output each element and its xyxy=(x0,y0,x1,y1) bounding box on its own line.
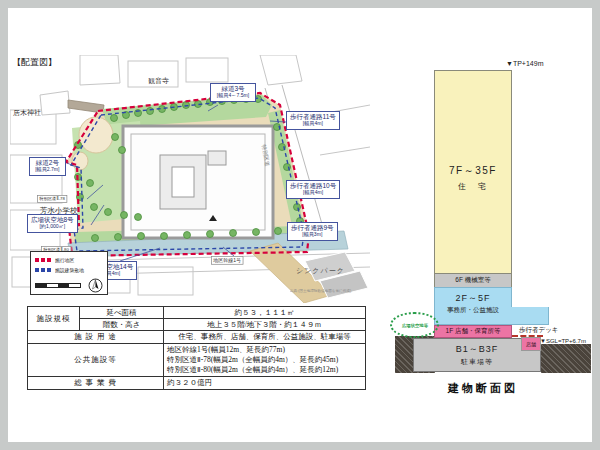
tower-use-label: 住 宅 xyxy=(434,181,512,192)
floor-area-value: 約５３，１１１㎡ xyxy=(164,307,366,319)
machine-floor-label: 6F 機械室等 xyxy=(434,276,512,285)
greenway2-label: 緑道2号 [幅員2.7m] xyxy=(29,157,66,176)
plaza-open-space-badge: 広場状空地等 xyxy=(390,312,439,338)
legend-site-label: 施設建築敷地 xyxy=(55,266,84,273)
tp-top-label: ▼TP+149m xyxy=(506,60,543,67)
table-row: 公共施設等 地区幹線1号(幅員12m、延長約77m) 特別区道Ⅱ-78(幅員2m… xyxy=(28,344,366,377)
public-line-3: 特別区道Ⅱ-80(幅員2m（全幅員約4m）、延長約12m) xyxy=(167,365,362,375)
public-facilities-label: 公共施設等 xyxy=(28,344,164,377)
office-use-label: 事務所・公益施設 xyxy=(434,306,512,315)
planning-document: { "plan": { "title": "【配置図】" }, "map": {… xyxy=(0,0,600,450)
use-label: 施 設 用 途 xyxy=(28,331,164,344)
use-value: 住宅、事務所、店舗、保育所、公益施設、駐車場等 xyxy=(164,331,366,344)
public-line-2: 特別区道Ⅱ-78(幅員2m（全幅員約4m）、延長約45m) xyxy=(167,355,362,365)
floors-value: 地上３５階/地下３階・約１４９ｍ xyxy=(164,319,366,331)
north-compass-icon xyxy=(88,278,103,293)
facility-spec-table: 施設規模 延べ面積 約５３，１１１㎡ 階数・高さ 地上３５階/地下３階・約１４９… xyxy=(27,306,366,390)
table-row: 施設規模 延べ面積 約５３，１１１㎡ xyxy=(28,307,366,319)
site-boundary-swatch xyxy=(35,268,52,272)
greenway3-label: 緑道3号 [幅員4～7.5m] xyxy=(210,83,256,102)
retail-floor-label: 1F 店舗・保育所等 xyxy=(434,327,512,336)
irugi-shrine-label: 居木神社 xyxy=(13,108,41,118)
map-legend: 施行地区 施設建築敷地 xyxy=(30,251,108,295)
basement-floors-label: B1～B3F xyxy=(413,343,541,356)
tower-floors-label: 7F～35F xyxy=(434,164,512,178)
kannonji-label: 観音寺 xyxy=(148,76,169,86)
legend-scale-row xyxy=(35,278,103,293)
scale-bar xyxy=(35,283,81,288)
lawn-oval-small xyxy=(72,152,88,170)
basement-use-label: 駐車場等 xyxy=(413,357,541,367)
legend-row-district: 施行地区 xyxy=(35,255,103,265)
floor-area-label: 延べ面積 xyxy=(80,307,164,319)
building-footprint xyxy=(123,126,273,238)
walkway11-label: 歩行者通路11号 [幅員4m] xyxy=(286,111,340,130)
public-facilities-value: 地区幹線1号(幅員12m、延長約77m) 特別区道Ⅱ-78(幅員2m（全幅員約4… xyxy=(164,344,366,377)
deck-label: 歩行者デッキ xyxy=(519,326,558,335)
floors-label: 階数・高さ xyxy=(80,319,164,331)
ward-road78-label: 特別区道Ⅱ-78 xyxy=(37,195,67,203)
district-trunk1-label: 地区幹線1号 xyxy=(211,256,243,265)
plaza-open-space-label: 広場状空地等 xyxy=(402,322,428,328)
district-boundary-swatch xyxy=(35,258,52,262)
think-park-label: シンクパーク xyxy=(296,266,345,276)
table-row: 施 設 用 途 住宅、事務所、店舗、保育所、公益施設、駐車場等 xyxy=(28,331,366,344)
cost-label: 総 事 業 費 xyxy=(28,377,164,390)
plan-title: 【配置図】 xyxy=(12,56,57,69)
legend-district-label: 施行地区 xyxy=(55,256,74,263)
sgl-label: ▼SGL=TP+6.7m xyxy=(540,338,586,344)
section-caption: 建物断面図 xyxy=(448,381,518,396)
legend-row-site: 施設建築敷地 xyxy=(35,265,103,275)
plaza8-label: 広場状空地8号 [約1,000㎡] xyxy=(27,214,78,233)
public-line-1: 地区幹線1号(幅員12m、延長約77m) xyxy=(167,345,362,355)
office-floors-label: 2F～5F xyxy=(434,292,512,305)
walkway9-label: 歩行者通路9号 [幅員3m] xyxy=(287,222,338,241)
table-row: 総 事 業 費 約３２０億円 xyxy=(28,377,366,390)
scale-group-cell: 施設規模 xyxy=(28,307,80,331)
ground-right xyxy=(541,344,591,373)
map-source-note: 出典:(国土地理院数値地図を基に作成) xyxy=(290,288,351,293)
walkway10-label: 歩行者通路10号 [幅員4m] xyxy=(286,180,340,199)
cost-value: 約３２０億円 xyxy=(164,377,366,390)
